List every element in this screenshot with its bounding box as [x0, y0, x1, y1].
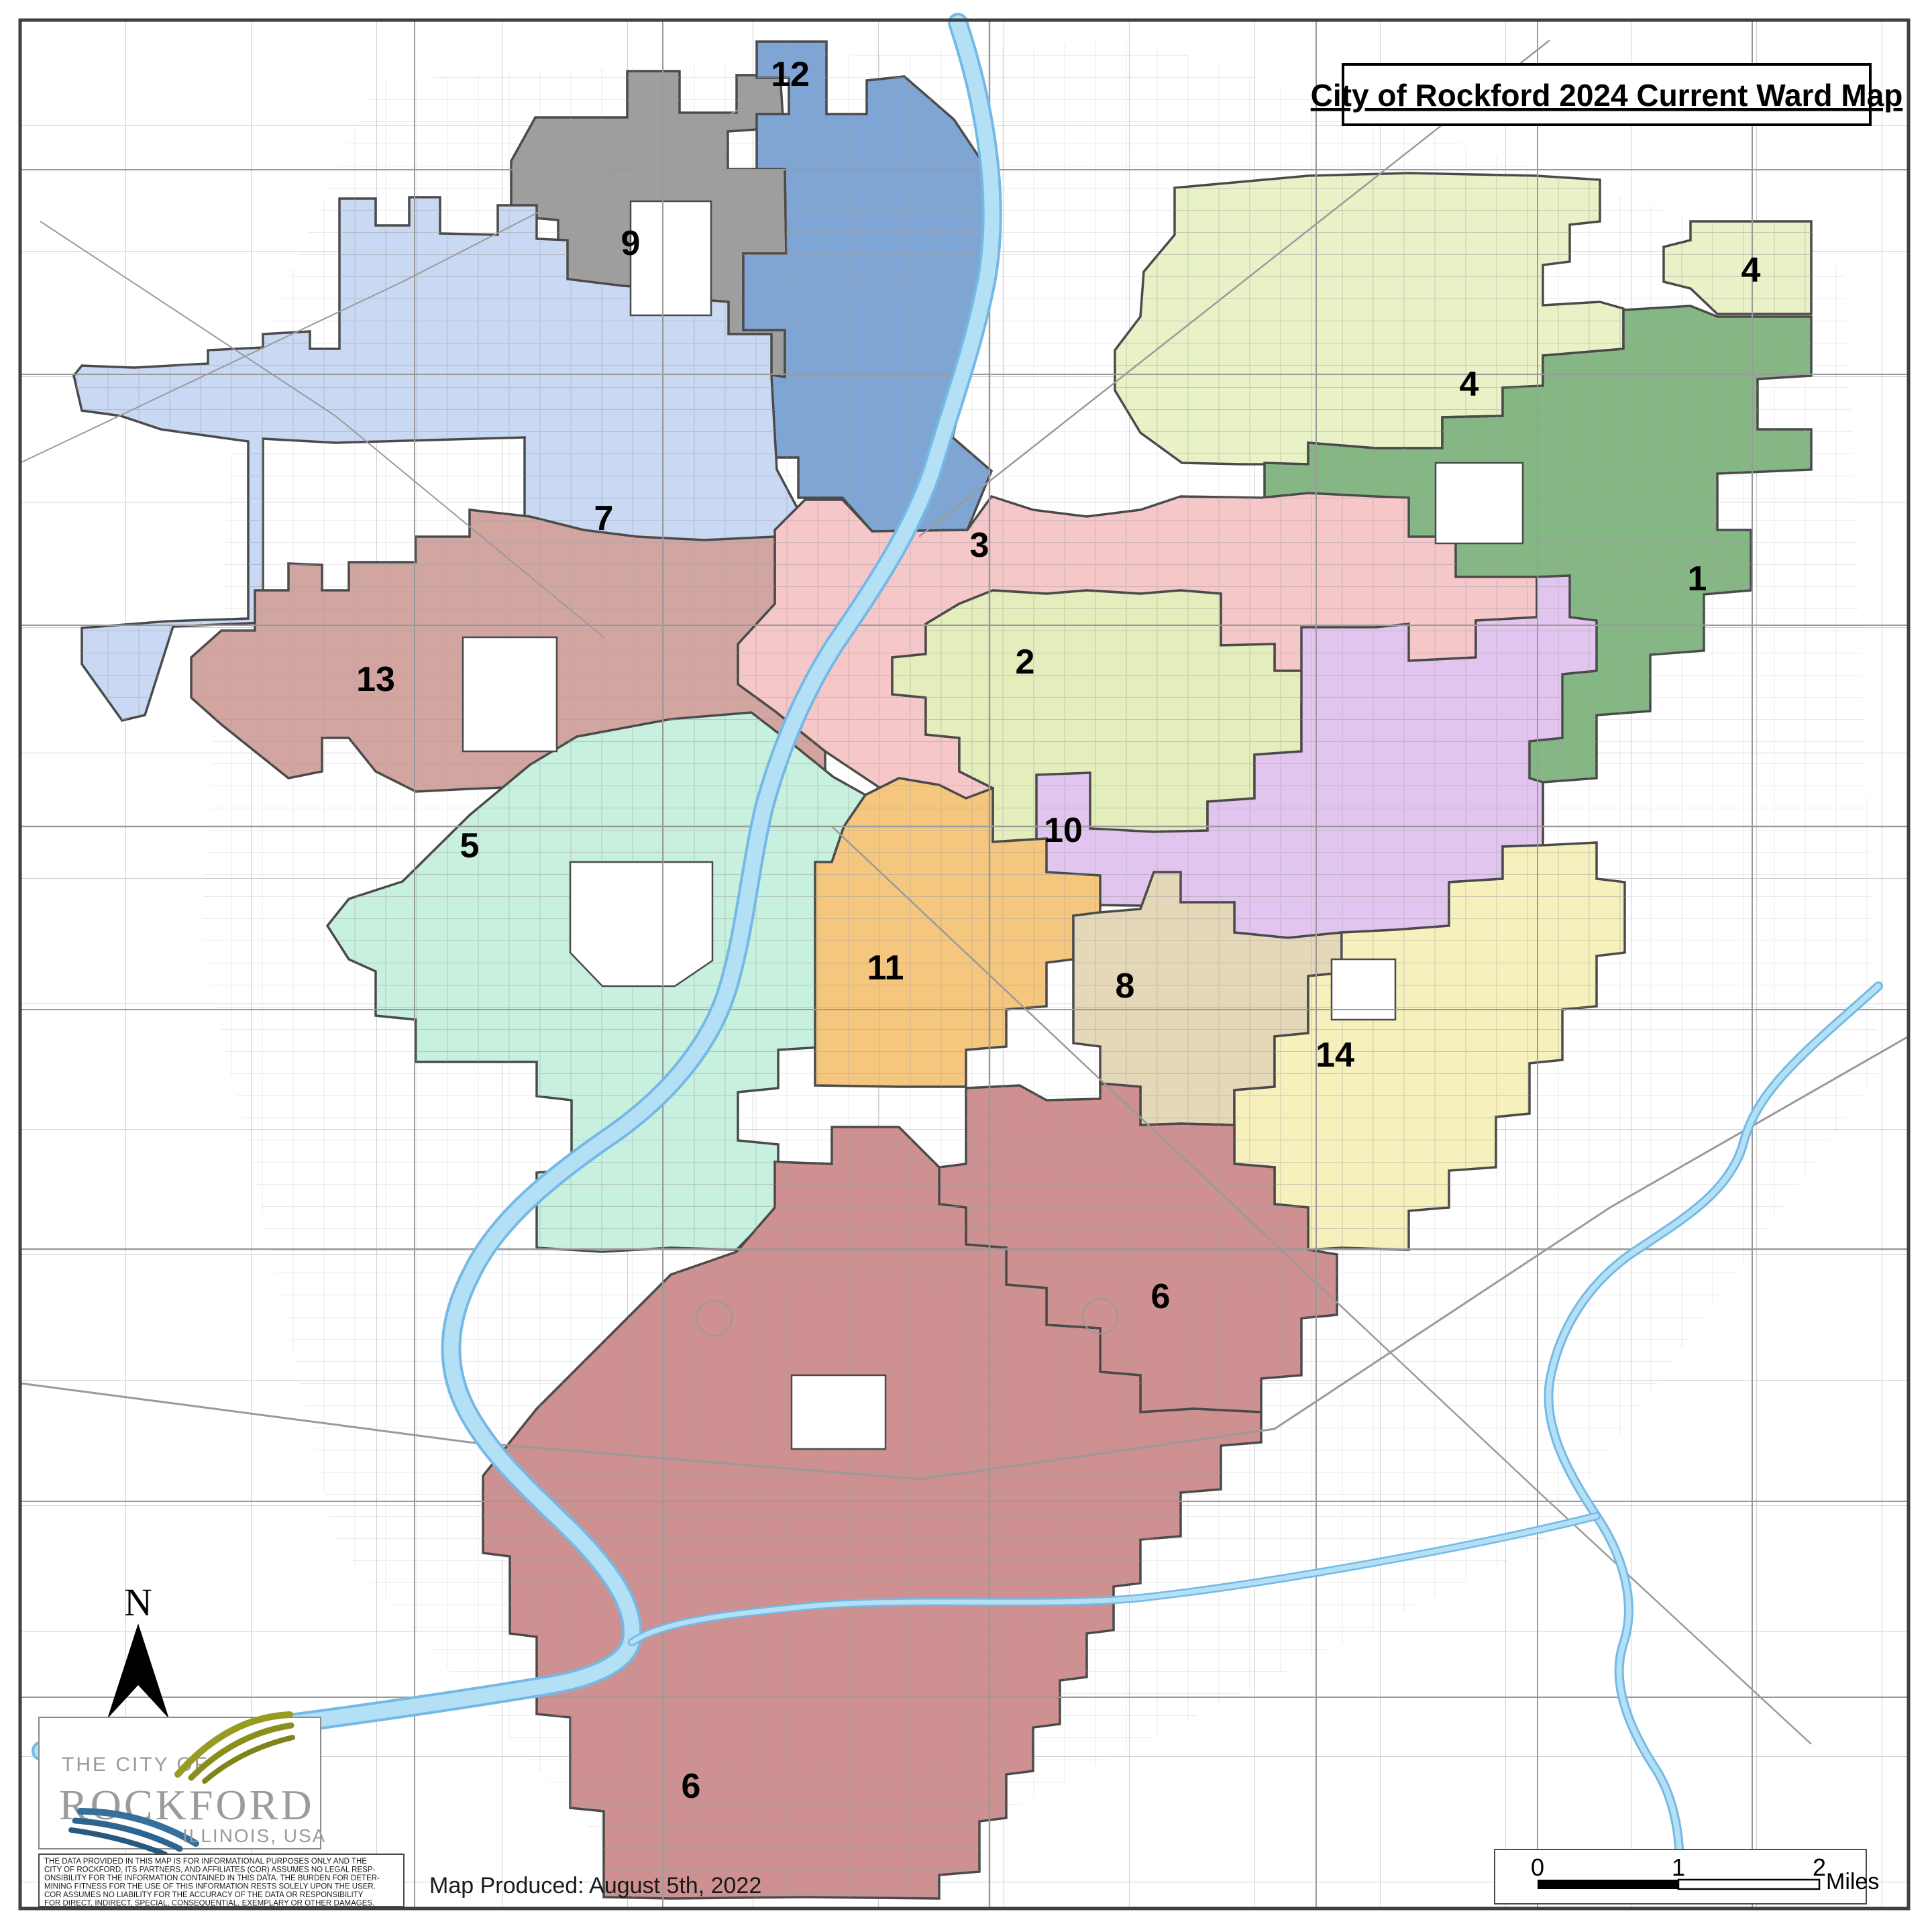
scale-unit-label: Miles [1826, 1869, 1879, 1894]
disclaimer-line-6: FOR DIRECT, INDIRECT, SPECIAL, CONSEQUEN… [44, 1900, 374, 1908]
north-arrow-label: N [124, 1580, 152, 1624]
map-hole-1 [570, 862, 712, 986]
map-hole-5 [631, 201, 711, 315]
ward-map-canvas: 912744131321051181466 City of Rockford 2… [0, 0, 1932, 1932]
ward-13-label: 13 [356, 660, 395, 699]
ward-4-label-2: 4 [1741, 251, 1761, 290]
ward-1-label: 1 [1688, 559, 1707, 598]
disclaimer-line-1: THE DATA PROVIDED IN THIS MAP IS FOR INF… [44, 1858, 367, 1866]
ward-7-label: 7 [594, 499, 614, 538]
map-produced-date: Map Produced: August 5th, 2022 [429, 1873, 761, 1898]
disclaimer-line-5: COR ASSUMES NO LIABILITY FOR THE ACCURAC… [44, 1891, 364, 1899]
map-hole-3 [1332, 959, 1395, 1020]
title-box: City of Rockford 2024 Current Ward Map [1311, 64, 1903, 125]
ward-14-label: 14 [1316, 1036, 1354, 1075]
map-hole-6 [792, 1375, 885, 1449]
scale-tick-2: 2 [1813, 1854, 1826, 1881]
disclaimer-line-2: CITY OF ROCKFORD, ITS PARTNERS, AND AFFI… [44, 1866, 375, 1874]
scale-bar: 0 1 2 Miles [1495, 1849, 1879, 1904]
scale-bar-filled-segment [1538, 1880, 1678, 1889]
ward-6-label-2: 6 [682, 1767, 701, 1806]
page-title: City of Rockford 2024 Current Ward Map [1311, 78, 1903, 113]
map-hole-2 [463, 637, 557, 751]
scale-bar-empty-segment [1678, 1880, 1819, 1889]
ward-11-label: 11 [867, 949, 904, 987]
ward-9-label: 9 [621, 224, 641, 263]
ward-4-label-1: 4 [1460, 365, 1479, 404]
logo-line-illinois-usa: ILLINOIS, USA [182, 1825, 326, 1846]
disclaimer-line-3: ONSIBILITY FOR THE INFORMATION CONTAINED… [44, 1874, 380, 1882]
disclaimer-box: THE DATA PROVIDED IN THIS MAP IS FOR INF… [39, 1854, 404, 1908]
scale-tick-1: 1 [1672, 1854, 1685, 1881]
ward-10-label: 10 [1044, 811, 1083, 850]
city-logo: THE CITY OF ROCKFORD ILLINOIS, USA [39, 1715, 326, 1854]
ward-2-label: 2 [1016, 643, 1035, 682]
ward-8-label: 8 [1116, 967, 1135, 1006]
ward-12-label: 12 [771, 55, 810, 94]
ward-5-label: 5 [460, 826, 480, 865]
ward-3-label: 3 [970, 526, 989, 565]
disclaimer-line-4: MINING FITNESS FOR THE USE OF THIS INFOR… [44, 1883, 376, 1891]
scale-tick-0: 0 [1531, 1854, 1544, 1881]
map-hole-4 [1436, 463, 1523, 543]
ward-6-label-1: 6 [1151, 1277, 1171, 1316]
